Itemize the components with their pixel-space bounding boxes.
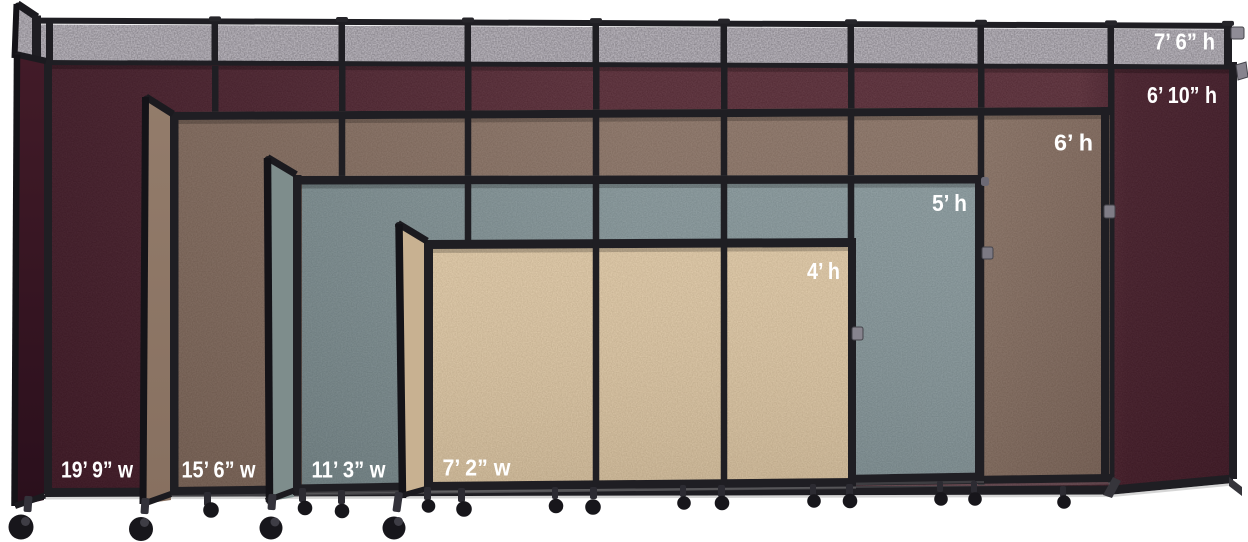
svg-text:7’ 2” w: 7’ 2” w	[443, 455, 511, 481]
svg-text:6’ h: 6’ h	[1054, 130, 1093, 156]
svg-text:15’ 6” w: 15’ 6” w	[182, 457, 256, 483]
svg-text:11’ 3” w: 11’ 3” w	[312, 457, 386, 483]
svg-text:19’ 9” w: 19’ 9” w	[61, 457, 133, 483]
svg-text:5’ h: 5’ h	[932, 190, 967, 216]
svg-text:6’ 10” h: 6’ 10” h	[1147, 82, 1217, 108]
svg-text:4’ h: 4’ h	[807, 258, 840, 284]
svg-text:7’ 6” h: 7’ 6” h	[1154, 29, 1215, 55]
